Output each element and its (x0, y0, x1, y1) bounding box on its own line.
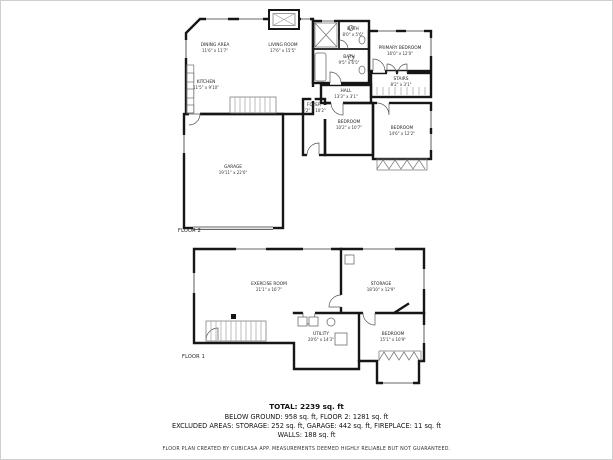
floor1-exercise-dims: 21'1" x 16'7" (256, 287, 282, 292)
floor2-garage-dims: 19'11" x 22'0" (219, 170, 248, 175)
floor2-living-dims: 17'6" x 15'5" (270, 48, 296, 53)
floor2-stairs-dims: 8'2" x 3'1" (391, 82, 412, 87)
kitchen-appliance-2 (187, 89, 194, 98)
primary-bedroom-door-arc (373, 59, 385, 71)
floor1-bedroom-dims: 15'1" x 10'9" (380, 337, 406, 342)
toilet-icon-bath1 (359, 36, 365, 44)
floor2-closet-sawtooth (377, 159, 427, 170)
dryer-box (309, 317, 318, 326)
floor1-stairs-up (206, 321, 266, 341)
floor2-hall-dims: 13'3" x 3'1" (334, 94, 358, 99)
disclaimer-text: FLOOR PLAN CREATED BY CUBICASA APP. MEAS… (1, 447, 612, 452)
stairs-strip-treads (377, 87, 425, 95)
floor2-bath2-dims: 9'5" x 6'5" (339, 60, 360, 65)
floor2-dining-dims: 11'6" x 11'7" (202, 48, 228, 53)
floor1-openings (194, 249, 424, 383)
toilet-icon-bath2 (359, 66, 365, 74)
floor2-primary-dims: 16'0" x 12'0" (387, 51, 413, 56)
area-summary: TOTAL: 2239 sq. ft BELOW GROUND: 958 sq.… (1, 402, 612, 440)
fireplace (269, 10, 299, 29)
floor2-plan: DINING AREA 11'6" x 11'7" LIVING ROOM 17… (173, 7, 435, 239)
linen-closet-x (315, 23, 337, 47)
floor1-closet-doors (379, 352, 419, 360)
bedroom-door-arc (363, 313, 375, 325)
floor2-stairs-down (230, 87, 425, 113)
floor1-window-gaps (194, 249, 424, 383)
walls-area-text: WALLS: 188 sq. ft (1, 431, 612, 439)
floor1-room-labels: EXERCISE ROOM 21'1" x 16'7" STORAGE 18'1… (251, 281, 406, 342)
floor1-walls (194, 249, 424, 383)
bath1-door-arc (339, 40, 348, 49)
furnace-icon (327, 318, 335, 326)
floor1-interior-walls (294, 249, 424, 361)
excluded-areas-text: EXCLUDED AREAS: STORAGE: 252 sq. ft, GAR… (1, 422, 612, 430)
stairs-outline (230, 97, 276, 113)
kitchen-appliance-1 (187, 73, 194, 82)
floor1-plan: EXERCISE ROOM 21'1" x 16'7" STORAGE 18'1… (181, 243, 431, 391)
floor1-storage-dims: 18'10" x 12'9" (367, 287, 396, 292)
bathtub-icon (315, 53, 326, 81)
support-post (231, 314, 236, 319)
washer-box (298, 317, 307, 326)
floor1-window-lines (194, 249, 424, 383)
floor2-bedroom3-dims: 14'6" x 12'2" (389, 131, 415, 136)
floor2-foyer-dims: 6'2" x 10'2" (302, 108, 326, 113)
floor1-fixtures (231, 255, 354, 345)
water-heater-box (335, 333, 347, 345)
bedroom-mid-door-arc (331, 103, 343, 115)
sawtooth-doors (377, 160, 425, 169)
storage-shelf-box (345, 255, 354, 264)
floor1-label: FLOOR 1 (182, 354, 205, 360)
floor2-living-block-outline (186, 19, 313, 114)
floor1-outline (194, 249, 424, 383)
stairs-treads (235, 97, 270, 113)
front-door-arc (307, 143, 319, 155)
floor2-kitchen-dims: 11'5" x 9'10" (193, 85, 219, 90)
floor1-stairs-treads (211, 321, 261, 341)
kitchen-appliance-3 (187, 105, 194, 113)
storage-door-arc (329, 295, 341, 307)
floor2-bedroom2-dims: 10'2" x 10'7" (336, 125, 362, 130)
bedroom-right-door-arc (377, 103, 389, 115)
floor-areas-text: BELOW GROUND: 958 sq. ft, FLOOR 2: 1281 … (1, 413, 612, 421)
floor-plan-page: DINING AREA 11'6" x 11'7" LIVING ROOM 17… (0, 0, 613, 460)
floor2-bath1-dims: 8'0" x 5'6" (343, 32, 364, 37)
floor2-label: FLOOR 2 (178, 228, 201, 234)
total-area-text: TOTAL: 2239 sq. ft (1, 402, 612, 411)
floor1-utility-dims: 20'6" x 14'3" (308, 337, 334, 342)
